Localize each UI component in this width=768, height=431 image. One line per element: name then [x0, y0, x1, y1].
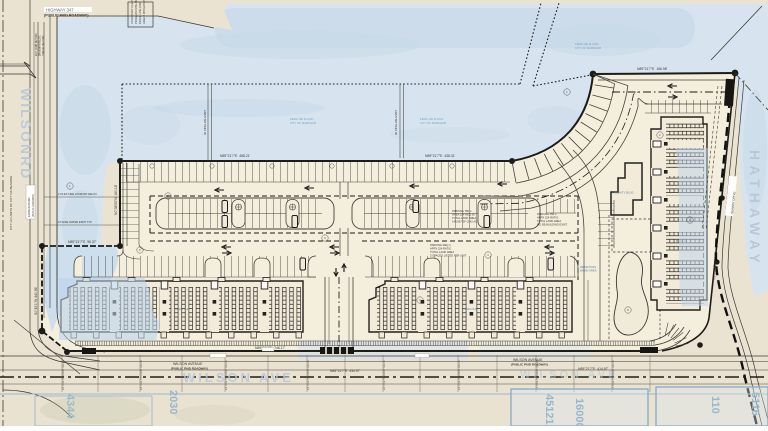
svg-text:(PUBLIC PAID ROADWAY): (PUBLIC PAID ROADWAY) — [44, 14, 89, 18]
svg-text:BLDG 5-8: BLDG 5-8 — [464, 307, 478, 311]
svg-text:N0°38'53"W 160.18': N0°38'53"W 160.18' — [114, 184, 118, 215]
svg-text:WILSON AVE: WILSON AVE — [183, 370, 294, 385]
svg-text:30 PIPELINE ESMT: 30 PIPELINE ESMT — [203, 110, 207, 135]
svg-text:CITY OF MARKHAM: CITY OF MARKHAM — [290, 121, 317, 125]
svg-text:4 X2 EX FIRE HYDRANT RELOC: 4 X2 EX FIRE HYDRANT RELOC — [58, 192, 97, 196]
svg-text:AREA 224 REQ 06: AREA 224 REQ 06 — [452, 213, 475, 217]
svg-text:APPX 224 RATIO: APPX 224 RATIO — [430, 247, 451, 251]
svg-text:AREA 2 MITIGATION: AREA 2 MITIGATION — [142, 0, 146, 24]
svg-text:HIGHWAY 347: HIGHWAY 347 — [46, 7, 74, 12]
svg-text:BASIN AREA: BASIN AREA — [580, 269, 597, 273]
svg-text:WILSONRD: WILSONRD — [18, 88, 34, 180]
svg-text:EX FIRE HYDRANT RELOC: EX FIRE HYDRANT RELOC — [383, 359, 386, 390]
svg-text:N89°21'7"E 434.97': N89°21'7"E 434.97' — [330, 369, 361, 373]
svg-text:N89°21'7"E 96.37': N89°21'7"E 96.37' — [68, 240, 97, 244]
svg-text:EX FIRE HYDRANT RELOC: EX FIRE HYDRANT RELOC — [307, 359, 310, 390]
svg-text:EX FIRE HYDRANT RELOC: EX FIRE HYDRANT RELOC — [536, 359, 539, 390]
svg-text:45121: 45121 — [543, 394, 555, 425]
svg-text:NO SB BUILDING EXIST: NO SB BUILDING EXIST — [537, 223, 568, 227]
svg-text:HATHAWAY: HATHAWAY — [747, 150, 763, 268]
svg-text:EX FIRE HYDRANT RELOC: EX FIRE HYDRANT RELOC — [225, 359, 228, 390]
svg-text:VOLUNTARY CLEAN: VOLUNTARY CLEAN — [130, 0, 134, 24]
svg-text:PARKING REQ 1: PARKING REQ 1 — [430, 243, 451, 247]
svg-text:N89°21'7"E 438.31': N89°21'7"E 438.31' — [425, 154, 456, 158]
svg-text:PARKING TBL 1: PARKING TBL 1 — [452, 209, 472, 213]
svg-text:EX FIRE HYDRANT RELOC: EX FIRE HYDRANT RELOC — [140, 359, 143, 390]
svg-text:110: 110 — [709, 396, 721, 414]
svg-text:AMENITY BLDG: AMENITY BLDG — [613, 191, 634, 195]
svg-text:5116: 5116 — [749, 392, 761, 416]
svg-text:148,967 SF (3.42 AC): 148,967 SF (3.42 AC) — [452, 220, 478, 224]
svg-text:WILSON AVENUE: WILSON AVENUE — [173, 362, 203, 366]
svg-text:CITY LO LIMITS OF CITY OF BEAR: CITY LO LIMITS OF CITY OF BEARING — [9, 175, 13, 230]
svg-text:EX FIRE HYDRANT RELOC: EX FIRE HYDRANT RELOC — [612, 359, 615, 390]
svg-text:CITY OF MARKHAM: CITY OF MARKHAM — [420, 121, 447, 125]
svg-text:S0°42'1"W 440.96': S0°42'1"W 440.96' — [34, 286, 38, 315]
svg-text:EX FIRE HYDRANT RELOC: EX FIRE HYDRANT RELOC — [458, 359, 461, 390]
svg-text:TOTAL LAND AREA: TOTAL LAND AREA — [537, 219, 561, 223]
svg-text:TYPICAL SECTION: TYPICAL SECTION — [42, 35, 45, 56]
svg-text:WILSON AVE: WILSON AVE — [520, 369, 618, 381]
svg-text:PROGRAM SITE AREA: PROGRAM SITE AREA — [134, 0, 138, 24]
svg-text:10 WIDE WATER ESMT TYP: 10 WIDE WATER ESMT TYP — [58, 220, 92, 224]
svg-text:BLDG 1-4: BLDG 1-4 — [175, 307, 189, 311]
svg-text:FENCE LINE LIMIT: FENCE LINE LIMIT — [138, 1, 142, 24]
svg-text:EDISON ROAD: EDISON ROAD — [27, 197, 31, 217]
svg-text:30 PIPELINE ESMT: 30 PIPELINE ESMT — [394, 110, 398, 135]
svg-text:EX FIRE HYDRANT RELOC: EX FIRE HYDRANT RELOC — [62, 359, 65, 390]
svg-text:(PUBLIC ROADWAY): (PUBLIC ROADWAY) — [32, 194, 35, 217]
svg-text:2030: 2030 — [167, 390, 179, 414]
svg-text:TOTAL LAND AREA: TOTAL LAND AREA — [430, 250, 454, 254]
svg-text:(PUBLIC PAID ROADWAY): (PUBLIC PAID ROADWAY) — [511, 363, 548, 367]
svg-text:16000: 16000 — [573, 398, 585, 426]
svg-text:CITY OF MARKHAM: CITY OF MARKHAM — [575, 46, 602, 50]
svg-text:APPX 224 RATIO: APPX 224 RATIO — [537, 216, 558, 220]
svg-text:TOTAL LAND AREA: TOTAL LAND AREA — [452, 216, 476, 220]
svg-text:N89°21'7"E 166.98': N89°21'7"E 166.98' — [637, 67, 668, 71]
svg-text:DRIVEWAY RELOC: DRIVEWAY RELOC — [39, 35, 42, 56]
svg-text:N89°21'7"E 458.21': N89°21'7"E 458.21' — [220, 154, 251, 158]
